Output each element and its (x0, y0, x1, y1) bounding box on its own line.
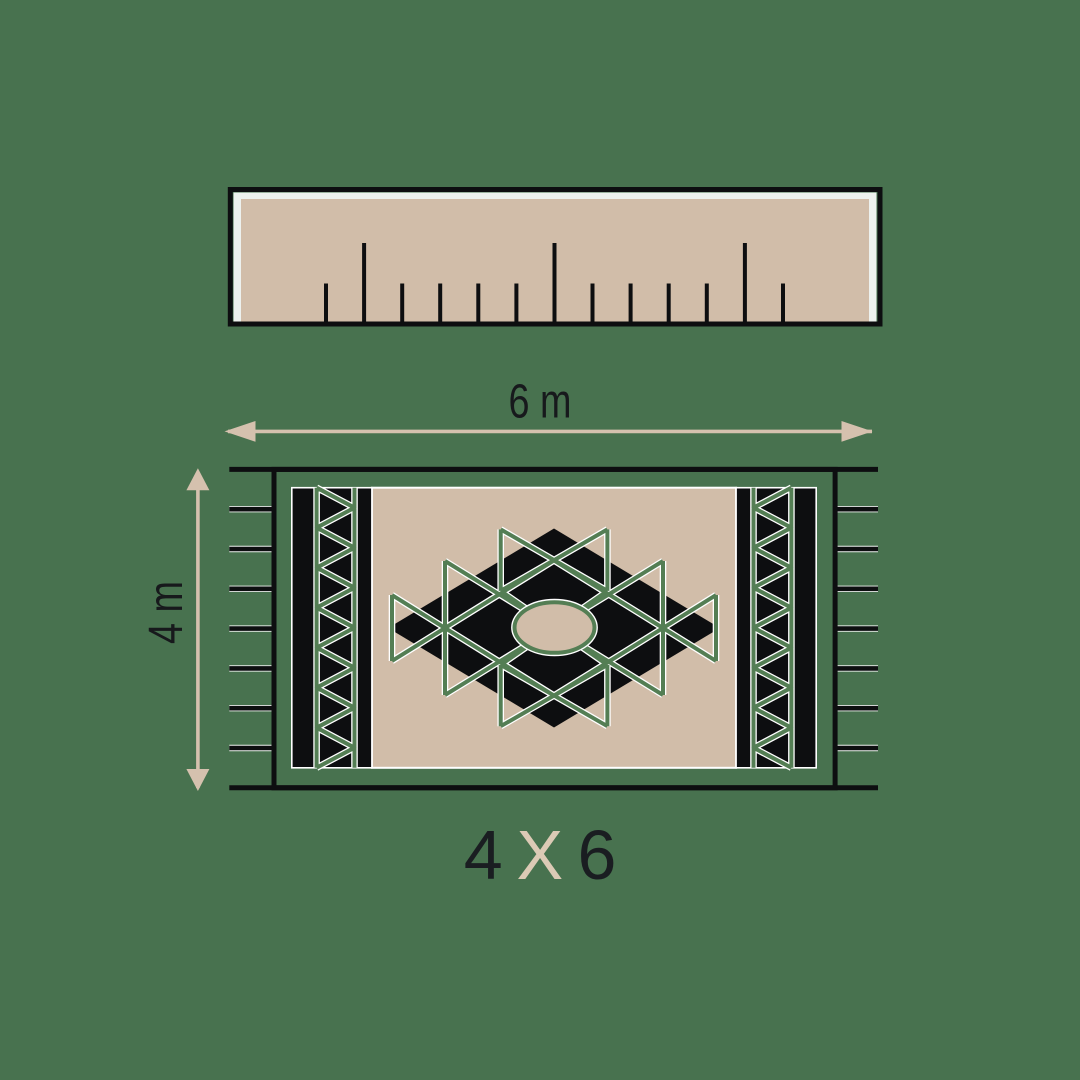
svg-text:4 m: 4 m (140, 581, 193, 644)
svg-text:6: 6 (578, 816, 617, 894)
svg-text:4: 4 (464, 816, 503, 894)
svg-text:X: X (516, 816, 563, 894)
svg-text:6 m: 6 m (509, 376, 572, 429)
